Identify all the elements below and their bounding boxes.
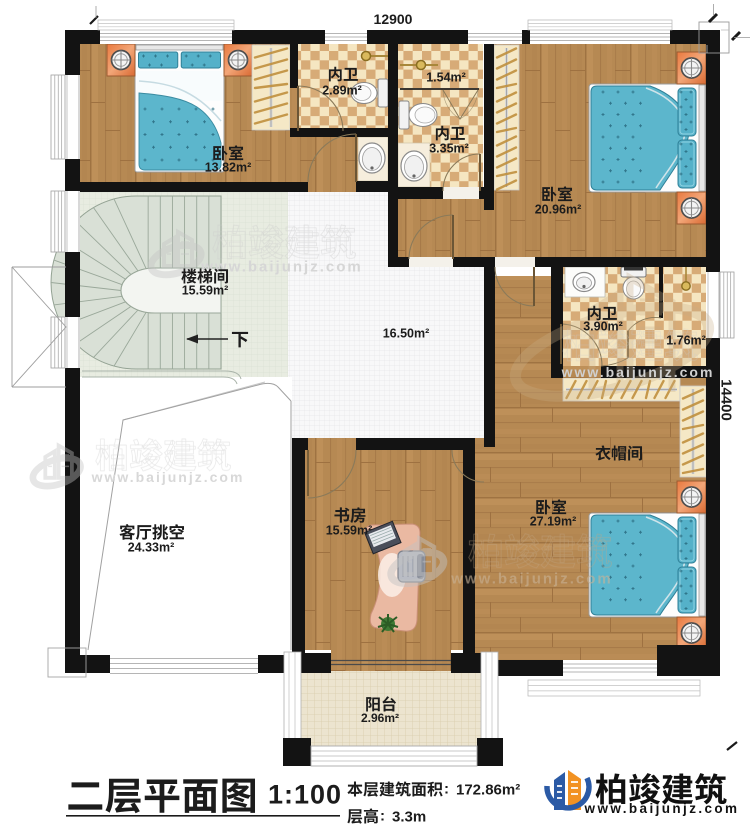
svg-text::: : xyxy=(444,780,449,797)
svg-text:15.59m²: 15.59m² xyxy=(182,283,229,297)
svg-text:2.89m²: 2.89m² xyxy=(322,83,362,97)
svg-text:12900: 12900 xyxy=(374,11,413,27)
svg-text:1.54m²: 1.54m² xyxy=(426,70,466,84)
svg-text:www.baijunjz.com: www.baijunjz.com xyxy=(91,469,245,485)
svg-text:15.59m²: 15.59m² xyxy=(326,523,373,537)
svg-text:14400: 14400 xyxy=(718,379,735,421)
svg-text:1:100: 1:100 xyxy=(268,780,342,810)
svg-text:2.96m²: 2.96m² xyxy=(361,711,399,725)
svg-text:www.baijunjz.com: www.baijunjz.com xyxy=(561,364,715,380)
svg-text:13.82m²: 13.82m² xyxy=(205,160,252,174)
svg-text:3.90m²: 3.90m² xyxy=(583,319,623,333)
svg-text:3.3m: 3.3m xyxy=(392,808,426,825)
svg-text:24.33m²: 24.33m² xyxy=(128,540,175,554)
svg-text:3.35m²: 3.35m² xyxy=(429,141,469,155)
svg-text:www.baijunjz.com: www.baijunjz.com xyxy=(450,570,612,587)
svg-text:27.19m²: 27.19m² xyxy=(530,514,577,528)
svg-text:20.96m²: 20.96m² xyxy=(535,202,582,216)
svg-text:172.86m²: 172.86m² xyxy=(456,781,520,798)
svg-text:1.76m²: 1.76m² xyxy=(666,333,706,347)
svg-text:www.baijunjz.com: www.baijunjz.com xyxy=(584,801,740,816)
svg-text::: : xyxy=(380,807,385,824)
svg-text:16.50m²: 16.50m² xyxy=(383,326,430,340)
svg-text:www.baijunjz.com: www.baijunjz.com xyxy=(200,258,362,275)
